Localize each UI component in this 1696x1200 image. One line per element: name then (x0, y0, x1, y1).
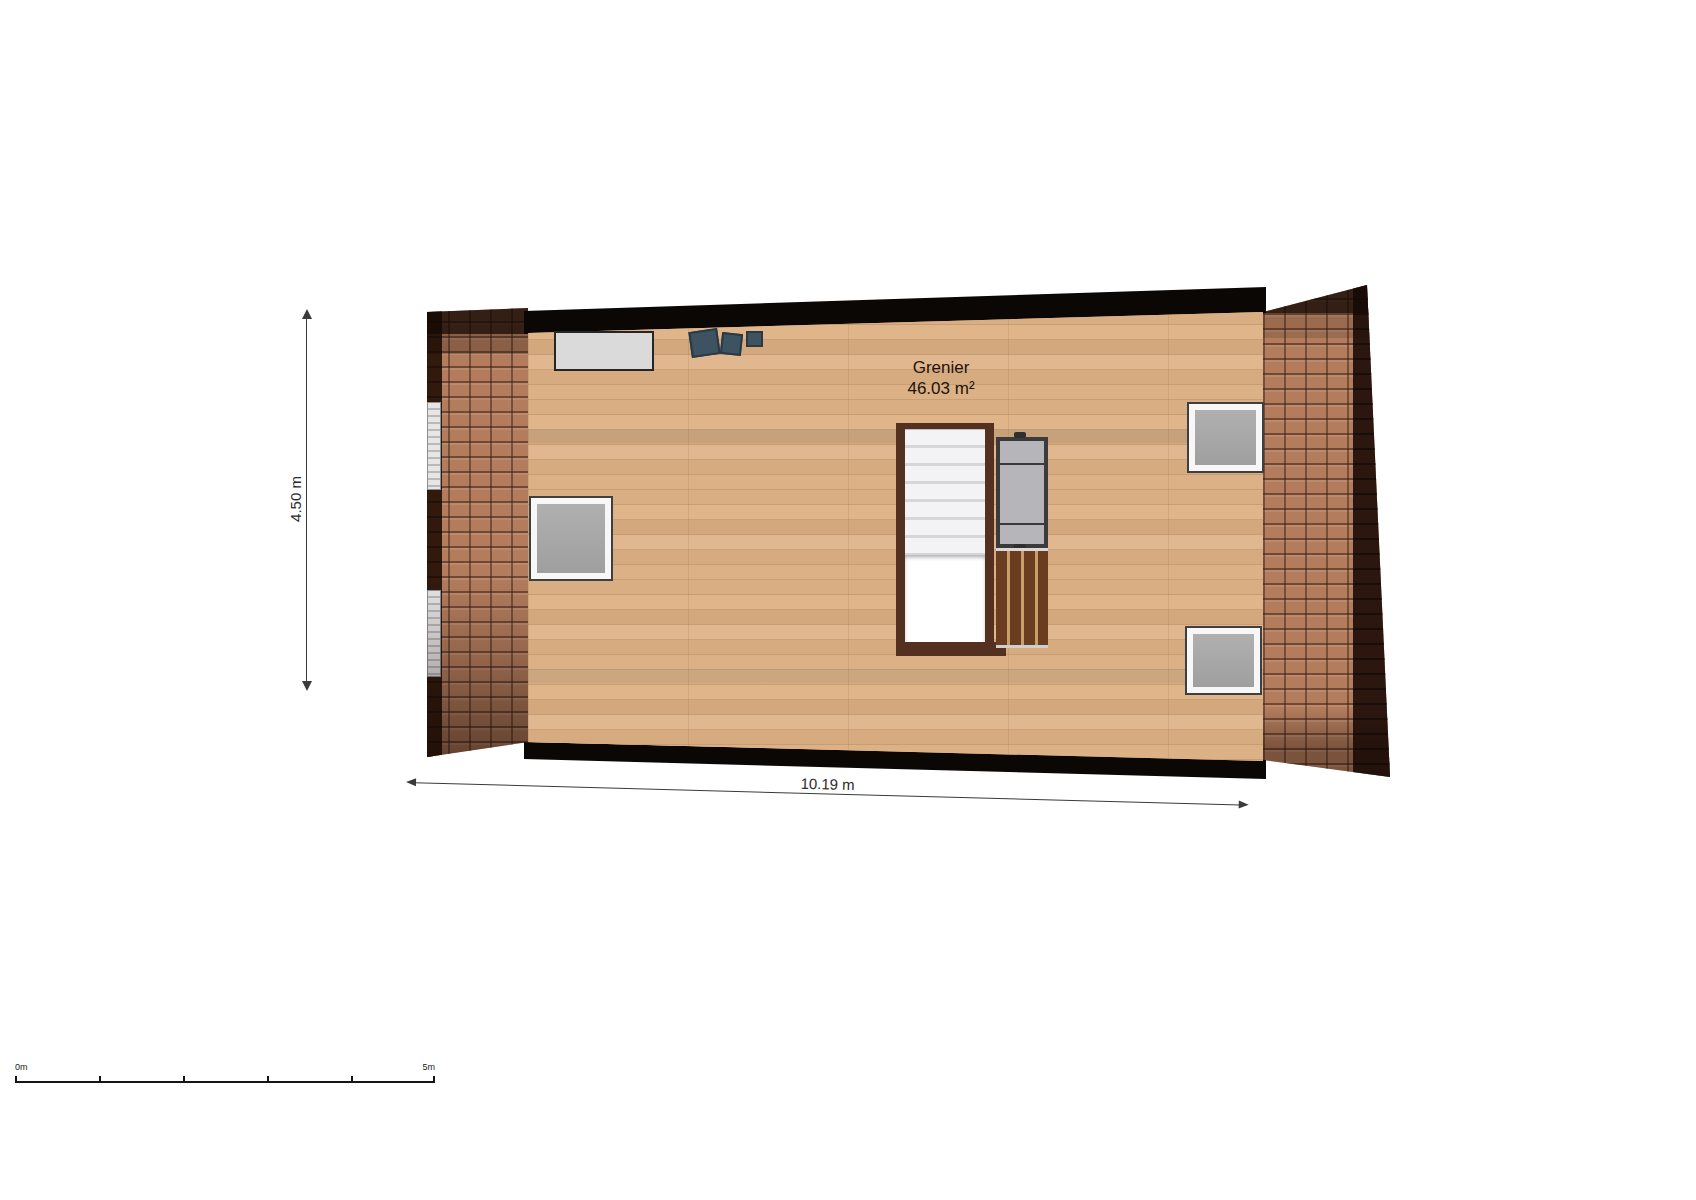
railing-bar-lower (1000, 523, 1044, 525)
skylight-right-bottom (1185, 626, 1262, 695)
arrow-up-icon (302, 309, 312, 319)
room-area: 46.03 m² (866, 378, 1016, 399)
floor-plan-page: Grenier 46.03 m² 4.50 m 10.19 m 0m 5m (0, 0, 1696, 1200)
stair-treads (905, 429, 985, 555)
cushion-3 (746, 331, 763, 347)
scale-end-label: 5m (422, 1062, 435, 1072)
stair-wall-left (896, 423, 905, 656)
skylight-left-glass (537, 504, 605, 573)
dimension-vertical: 4.50 m (296, 309, 320, 691)
scale-start-label: 0m (15, 1062, 28, 1072)
dimension-height-value: 4.50 m (287, 476, 304, 522)
skylight-left (529, 496, 613, 581)
room-label: Grenier 46.03 m² (866, 357, 1016, 399)
roof-right-shadow (1263, 283, 1390, 778)
cushion-2 (720, 332, 743, 356)
arrow-right-icon (1239, 801, 1249, 809)
skylight-right-bottom-glass (1193, 634, 1254, 687)
room-name: Grenier (866, 357, 1016, 378)
roof-left-shadow (427, 306, 528, 758)
arrow-down-icon (302, 681, 312, 691)
stair-opening (905, 555, 985, 642)
dimension-vertical-line (306, 317, 307, 683)
storage-panel (554, 331, 654, 371)
scale-bar: 0m 5m (15, 1062, 435, 1086)
dimension-horizontal: 10.19 m (406, 771, 1249, 818)
cushion-1 (688, 328, 720, 358)
dimension-width-value: 10.19 m (800, 775, 855, 793)
dimension-height-label: 4.50 m (287, 469, 303, 529)
railing-bar-upper (1000, 463, 1044, 465)
roof-section-right (1263, 283, 1390, 778)
railing-post-top (1014, 432, 1026, 438)
skylight-right-top-glass (1195, 410, 1256, 465)
stair-wood-steps (996, 548, 1048, 648)
stair-railing (996, 437, 1048, 548)
skylight-right-top (1187, 402, 1264, 473)
roof-section-left (427, 306, 528, 758)
scale-line (15, 1081, 435, 1083)
stair-wall-right (985, 423, 994, 655)
stair-wall-bottom (896, 642, 1006, 656)
